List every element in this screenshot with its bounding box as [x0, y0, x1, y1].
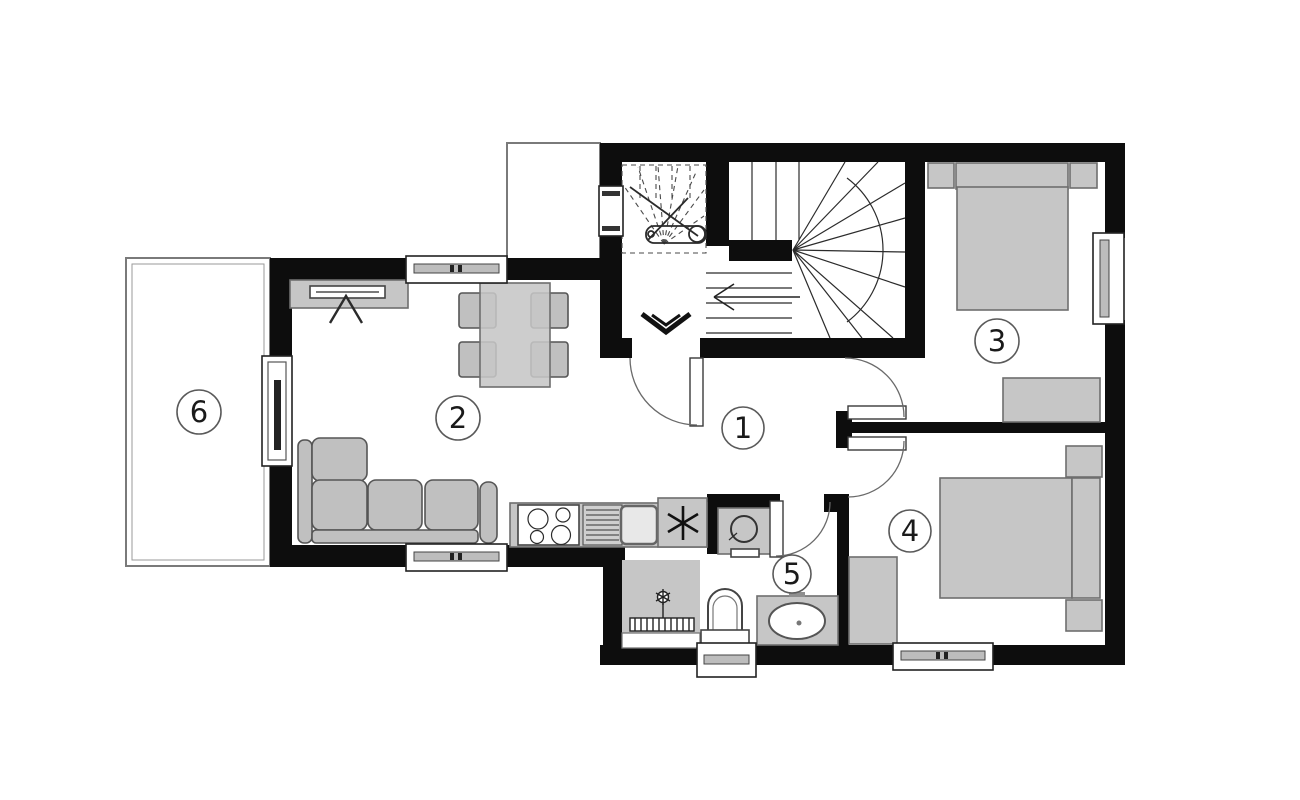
double-bed [940, 478, 1072, 598]
room-number-bedroom-3: 3 [988, 324, 1006, 358]
washing-machine [718, 508, 772, 554]
corner-sofa [298, 438, 497, 543]
bedroom-4-furniture [849, 446, 1102, 644]
dining-table [480, 283, 550, 387]
sofa-cushion [425, 480, 478, 530]
toilet [701, 589, 749, 649]
window-living-bottom [406, 544, 507, 571]
floor-plan-svg: 1 2 3 4 5 6 [0, 0, 1300, 800]
bedroom-3-furniture [928, 163, 1100, 422]
bed-pillow-band [956, 163, 1068, 189]
sofa-armrest [298, 440, 312, 543]
nightstand [1066, 446, 1102, 477]
room-number-bathroom: 5 [783, 557, 801, 591]
floor-plan-canvas: 1 2 3 4 5 6 [0, 0, 1300, 800]
window-bedroom-4 [893, 643, 993, 670]
room-number-hallway: 1 [734, 411, 752, 445]
sofa-front-edge [312, 530, 478, 543]
door-to-bedroom-4 [848, 437, 906, 497]
door-stairs-to-hallway [630, 358, 703, 426]
nightstand [928, 163, 954, 188]
dish-drainer [583, 505, 622, 545]
nightstand [1066, 600, 1102, 631]
window-bedroom-3 [1093, 233, 1124, 324]
wardrobe [1003, 378, 1100, 422]
sofa-chaise-cushion [312, 438, 367, 481]
entrance-door [599, 186, 623, 236]
sofa-cushion [312, 480, 367, 530]
washbasin [769, 603, 825, 639]
door-to-bedroom-3 [845, 358, 906, 419]
entry-lobby [622, 165, 706, 332]
window-living-top [406, 256, 507, 283]
room-number-bedroom-4: 4 [901, 514, 919, 548]
dining-set [459, 283, 568, 387]
kitchen-counter [510, 498, 707, 547]
sofa-cushion [368, 480, 422, 530]
double-bed [957, 187, 1068, 310]
bed-headboard [1072, 478, 1100, 598]
shower-tray-edge [622, 633, 700, 648]
door-to-bathroom [770, 501, 830, 557]
room-number-living: 2 [449, 401, 467, 435]
sofa-armrest [480, 482, 497, 543]
nightstand [1070, 163, 1097, 188]
kitchen-sink [621, 506, 657, 544]
balcony-door [262, 356, 292, 466]
wardrobe [849, 557, 897, 644]
entry-arrow-down-icon [642, 314, 690, 332]
room-number-terrace: 6 [190, 395, 208, 429]
entry-porch-outline [507, 143, 600, 263]
window-bathroom [697, 643, 756, 677]
